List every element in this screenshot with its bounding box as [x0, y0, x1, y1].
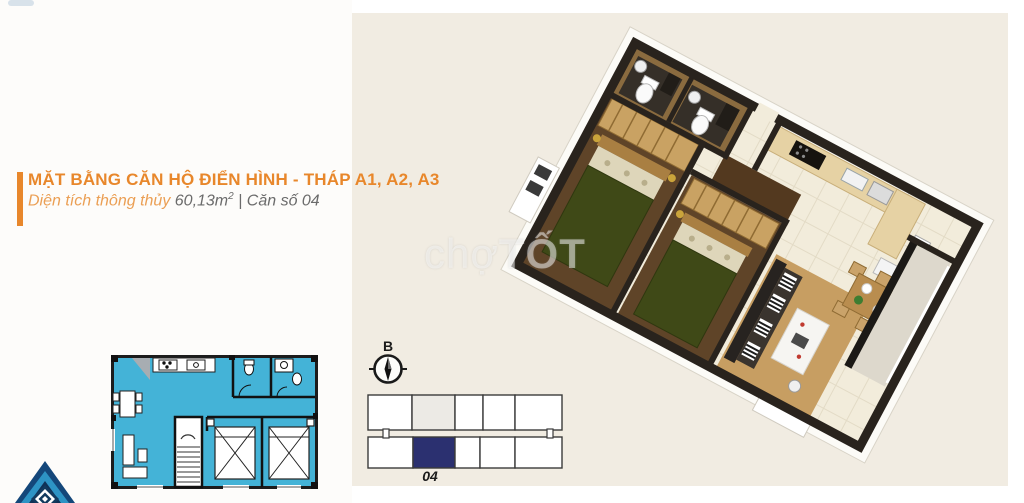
- stove-icon: [159, 360, 177, 370]
- block-cell: [515, 395, 562, 430]
- block-cell: [412, 395, 455, 430]
- toilet-icon: [293, 373, 302, 385]
- block-cell: [413, 437, 455, 468]
- block-cell: [455, 395, 483, 430]
- kitchen-2d: [153, 358, 215, 372]
- floor-plan-2d: [111, 355, 318, 489]
- block-cell: [480, 437, 515, 468]
- block-connector: [383, 429, 389, 438]
- block-cell: [368, 395, 412, 430]
- building-position-diagram: [358, 388, 573, 480]
- flyer-canvas: chợTỐT MẶT BẰNG CĂN HỘ ĐIỂN HÌNH - THÁP …: [0, 0, 1024, 503]
- watermark: chợTỐT: [424, 230, 586, 278]
- dining-table: [120, 391, 135, 417]
- developer-logo: [15, 459, 75, 503]
- block-connector: [547, 429, 553, 438]
- unit-number-label: 04: [406, 468, 454, 484]
- block-cell: [368, 437, 413, 468]
- washer-icon: [275, 359, 293, 372]
- block-cell: [515, 437, 562, 468]
- block-cell: [455, 437, 480, 468]
- block-cell: [483, 395, 515, 430]
- sink-icon: [187, 360, 205, 370]
- stairs-core: [175, 417, 202, 487]
- coffee-table-2d: [138, 449, 147, 462]
- compass-icon: [367, 351, 409, 389]
